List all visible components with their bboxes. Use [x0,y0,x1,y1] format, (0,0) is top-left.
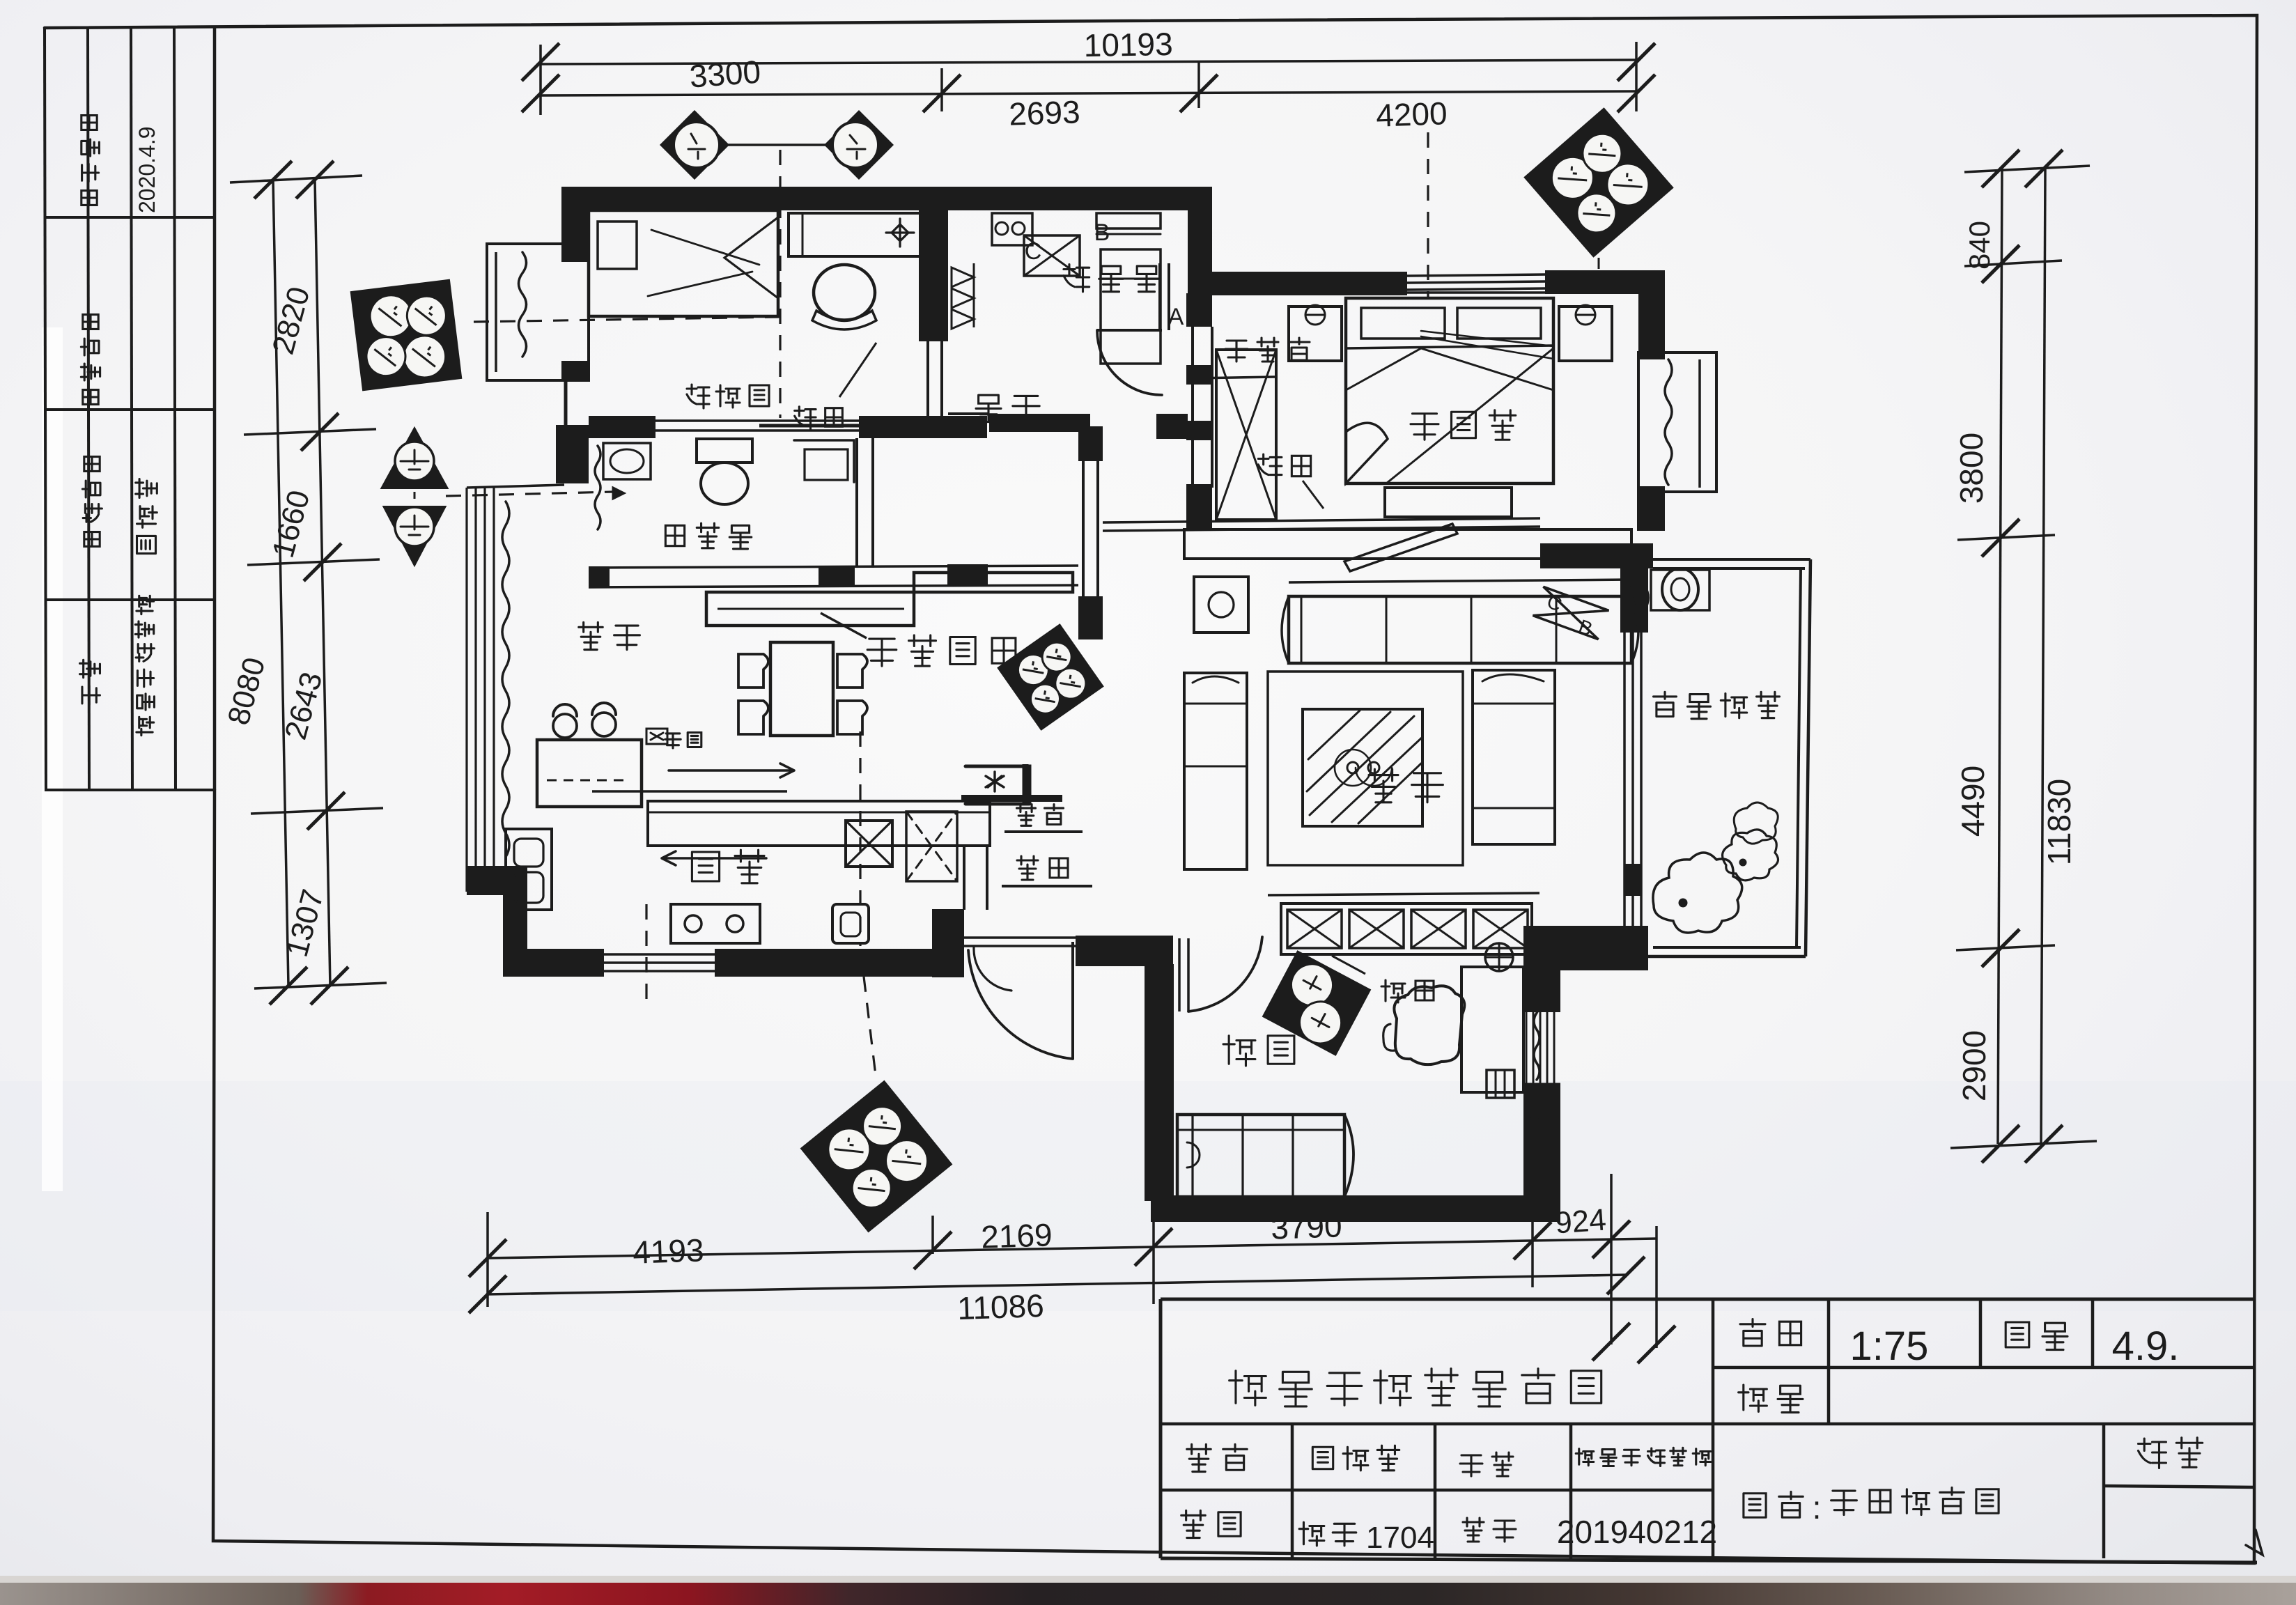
svg-text:3300: 3300 [688,54,762,95]
svg-text:201940212: 201940212 [1557,1514,1717,1550]
svg-text:2169: 2169 [980,1216,1053,1255]
svg-text:4193: 4193 [632,1232,704,1271]
svg-text:2693: 2693 [1008,93,1080,132]
svg-text:11086: 11086 [956,1287,1044,1326]
svg-text:840: 840 [1963,221,1996,270]
svg-text:1:75: 1:75 [1850,1324,1929,1369]
svg-text:4490: 4490 [1955,766,1991,837]
svg-text:B: B [1094,219,1110,246]
svg-text:11830: 11830 [2041,779,2077,866]
svg-text:2900: 2900 [1956,1030,1992,1101]
svg-text:3800: 3800 [1953,433,1989,504]
svg-text:10193: 10193 [1083,26,1173,63]
svg-text::: : [1813,1489,1822,1526]
svg-text:4.9.: 4.9. [2112,1324,2180,1369]
svg-text:1704: 1704 [1366,1521,1434,1555]
svg-text:A: A [1168,304,1184,330]
svg-text:924: 924 [1554,1203,1608,1241]
svg-text:4200: 4200 [1375,95,1448,134]
svg-text:C: C [1025,238,1042,265]
svg-text:2020.4.9: 2020.4.9 [134,126,160,213]
